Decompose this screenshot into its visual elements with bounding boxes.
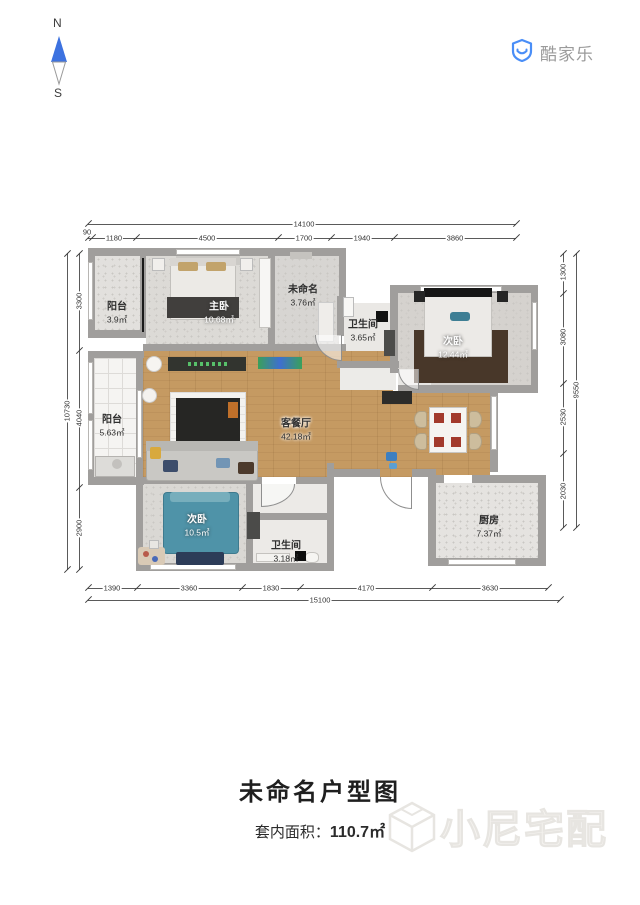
room-area: 7.37㎡: [476, 528, 501, 539]
dim-tick: [573, 524, 580, 531]
room-name: 未命名: [288, 284, 318, 298]
aquarium: [258, 357, 302, 369]
chair: [414, 411, 427, 428]
rug: [138, 547, 165, 565]
dim-tick: [545, 584, 552, 591]
shelf: [290, 252, 312, 259]
robot-dock: [389, 463, 397, 469]
pillow: [178, 262, 198, 271]
wall: [296, 477, 334, 484]
vanity: [247, 512, 260, 539]
chair: [469, 411, 482, 428]
tv-console-lights: [188, 362, 228, 366]
dim-label: 1390: [103, 584, 122, 592]
nightstand: [414, 291, 425, 302]
dim-label: 3080: [559, 328, 567, 347]
wall: [143, 344, 346, 351]
watermark: 小尼宅配: [440, 797, 608, 855]
wall: [538, 475, 546, 566]
cushion: [238, 462, 254, 474]
wall: [390, 285, 398, 373]
dim-tick: [557, 596, 564, 603]
dim-label: 9550: [572, 381, 580, 400]
side-table: [149, 540, 159, 549]
room-label-bedroom-right: 次卧 12.44㎡: [438, 336, 468, 361]
dim-label: 4170: [357, 584, 376, 592]
robot-vacuum: [386, 452, 397, 461]
kujiale-shield-icon: [510, 38, 534, 62]
bench: [176, 552, 224, 565]
wall: [250, 513, 334, 520]
dim-label: 2900: [75, 519, 83, 538]
dim-label: 1300: [559, 263, 567, 282]
area-value: 110.7㎡: [330, 824, 385, 841]
cushion: [216, 458, 230, 468]
dim-label: 1180: [105, 234, 123, 242]
dim-line-bottom-segments: [88, 588, 548, 589]
window: [88, 362, 93, 414]
placemat: [434, 437, 444, 447]
room-label-bathroom-top: 卫生间 3.65㎡: [348, 319, 378, 344]
floor-lamp: [142, 388, 157, 403]
dim-label: 3630: [481, 584, 500, 592]
room-label-living-dining: 客餐厅 42.18㎡: [281, 418, 311, 443]
decor: [143, 551, 149, 557]
chair: [469, 433, 482, 450]
nightstand: [152, 258, 165, 271]
dim-label: 3300: [75, 292, 83, 311]
lamp: [146, 356, 162, 372]
placemat: [451, 413, 461, 423]
dim-label: 15100: [309, 596, 332, 604]
vanity: [384, 330, 395, 356]
dim-label: 4040: [75, 409, 83, 428]
room-name: 卫生间: [271, 540, 301, 554]
wall: [327, 469, 380, 477]
room-label-unnamed: 未命名 3.76㎡: [288, 284, 318, 309]
room-area: 5.63㎡: [99, 427, 124, 438]
dim-label: 2530: [559, 408, 567, 427]
nightstand: [240, 258, 253, 271]
floor-hallway: [340, 368, 396, 390]
decor: [228, 402, 238, 418]
floorplan-page: { "compass": { "north": "N", "south": "S…: [0, 0, 640, 905]
cushion: [163, 460, 178, 472]
room-area: 3.18㎡: [271, 553, 301, 564]
toilet: [305, 552, 319, 563]
chair: [414, 433, 427, 450]
room-name: 次卧: [184, 514, 209, 528]
dim-label: 1830: [262, 584, 281, 592]
room-area: 3.76㎡: [288, 297, 318, 308]
dim-label: 14100: [293, 220, 316, 228]
pillow: [170, 492, 230, 502]
dim-tick: [560, 524, 567, 531]
room-name: 卫生间: [348, 319, 378, 333]
pillow: [206, 262, 226, 271]
pillow: [450, 312, 470, 321]
placemat: [451, 437, 461, 447]
window: [491, 396, 497, 450]
dim-tick: [513, 234, 520, 241]
room-area: 12.44㎡: [438, 349, 468, 360]
area-label: 套内面积：: [255, 824, 330, 841]
dim-label: 1940: [353, 234, 372, 242]
bed-headboard: [424, 288, 492, 297]
wardrobe: [259, 258, 271, 328]
placemat: [434, 413, 444, 423]
watermark-cube-icon: [388, 801, 436, 853]
sideboard: [382, 391, 412, 404]
dim-label: 90: [82, 228, 92, 236]
room-name: 阳台: [107, 301, 127, 315]
window: [448, 559, 516, 565]
sliding-door-track: [142, 258, 144, 332]
dim-tick: [76, 566, 83, 573]
room-label-balcony-top: 阳台 3.9㎡: [107, 301, 127, 326]
dim-label: 1700: [295, 234, 314, 242]
room-area: 10.5㎡: [184, 527, 209, 538]
room-name: 次卧: [438, 336, 468, 350]
room-area: 3.65㎡: [348, 332, 378, 343]
room-label-bathroom-bottom: 卫生间 3.18㎡: [271, 540, 301, 565]
room-label-master-bedroom: 主卧 10.68㎡: [204, 301, 234, 326]
compass-needle-icon: [47, 32, 71, 88]
dim-label: 3360: [180, 584, 199, 592]
door-opening: [444, 475, 472, 483]
window: [88, 262, 93, 320]
window: [532, 302, 537, 350]
room-name: 客餐厅: [281, 418, 311, 432]
wall: [428, 475, 436, 566]
decor: [152, 556, 158, 562]
dim-tick: [513, 220, 520, 227]
washing-machine-door: [112, 459, 122, 469]
entrance-door-arc: [380, 477, 412, 509]
wall: [339, 248, 346, 303]
room-area: 42.18㎡: [281, 431, 311, 442]
cushion: [150, 447, 161, 459]
compass-south-label: S: [54, 86, 62, 100]
watermark-text: 小尼宅配: [440, 808, 608, 852]
room-name: 阳台: [99, 414, 124, 428]
room-name: 厨房: [476, 515, 501, 529]
dim-label: 4500: [198, 234, 217, 242]
room-area: 3.9㎡: [107, 314, 127, 325]
room-label-kitchen: 厨房 7.37㎡: [476, 515, 501, 540]
wall: [88, 330, 146, 338]
room-area: 10.68㎡: [204, 314, 234, 325]
window: [176, 249, 240, 255]
washbasin: [343, 297, 354, 317]
room-name: 主卧: [204, 301, 234, 315]
room-label-balcony-left: 阳台 5.63㎡: [99, 414, 124, 439]
window: [88, 420, 93, 470]
dim-tick: [64, 566, 71, 573]
compass-north-label: N: [53, 16, 62, 30]
sliding-door: [137, 390, 142, 458]
room-label-bedroom-bottom: 次卧 10.5㎡: [184, 514, 209, 539]
wall: [398, 385, 538, 393]
sofa-backrest: [146, 441, 258, 451]
nightstand: [497, 291, 508, 302]
dim-label: 2030: [559, 482, 567, 501]
dim-label: 3860: [446, 234, 465, 242]
brand-name: 酷家乐: [540, 40, 594, 65]
dim-label: 10730: [63, 400, 71, 423]
